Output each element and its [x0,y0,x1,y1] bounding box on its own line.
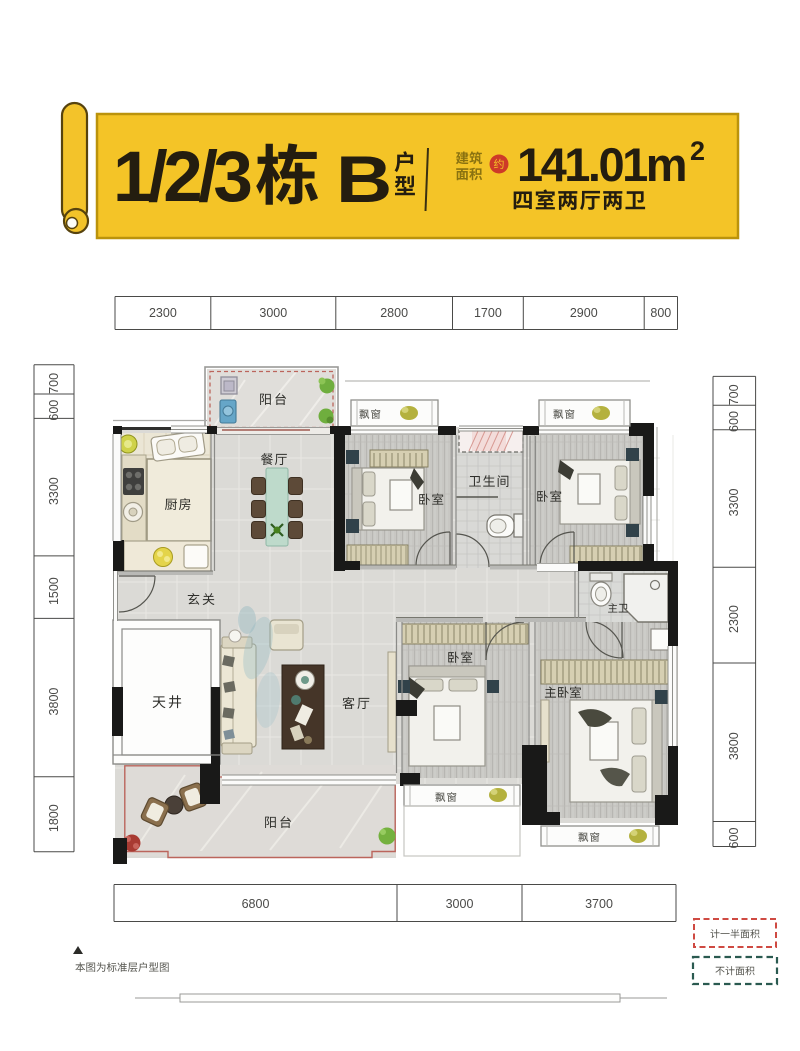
svg-text:3300: 3300 [727,489,741,517]
svg-text:3000: 3000 [446,897,474,911]
svg-text:700: 700 [47,373,61,394]
svg-text:B: B [336,143,392,216]
svg-text:1/2/3: 1/2/3 [113,138,250,217]
svg-text:6800: 6800 [242,897,270,911]
svg-text:3300: 3300 [47,477,61,505]
svg-text:700: 700 [727,384,741,405]
svg-text:2300: 2300 [149,306,177,320]
svg-text:800: 800 [650,306,671,320]
svg-text:2800: 2800 [380,306,408,320]
svg-text:3800: 3800 [47,688,61,716]
svg-text:1800: 1800 [47,804,61,832]
svg-text:600: 600 [727,828,741,849]
svg-text:3700: 3700 [585,897,613,911]
svg-text:600: 600 [47,400,61,421]
svg-text:1700: 1700 [474,306,502,320]
svg-text:2300: 2300 [727,605,741,633]
svg-text:141.01m: 141.01m [517,138,685,191]
svg-text:3800: 3800 [727,732,741,760]
svg-text:2: 2 [690,136,705,166]
svg-text:2900: 2900 [570,306,598,320]
svg-text:1500: 1500 [47,577,61,605]
svg-text:600: 600 [727,411,741,432]
svg-text:3000: 3000 [259,306,287,320]
